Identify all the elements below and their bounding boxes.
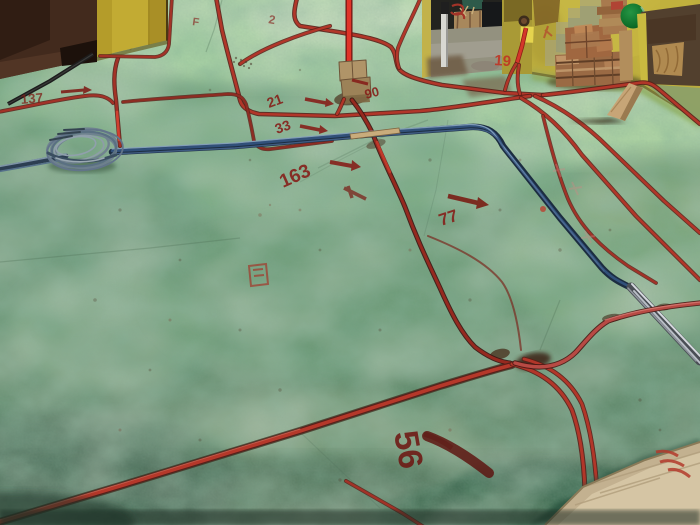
svg-text:19: 19: [494, 52, 512, 70]
svg-text:137: 137: [20, 90, 44, 107]
